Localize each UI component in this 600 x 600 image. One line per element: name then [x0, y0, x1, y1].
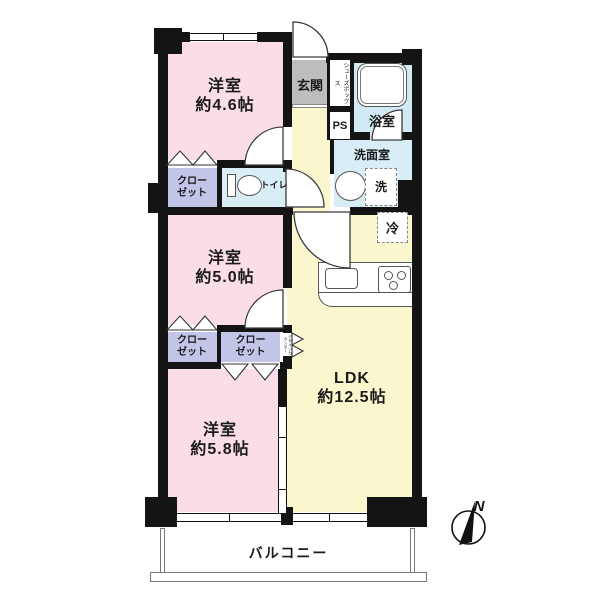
- closet-text: クロー: [177, 176, 207, 188]
- bedroom-bottom-label: 洋室 約5.8帖: [162, 422, 278, 460]
- entrance-label: 玄関: [290, 78, 330, 93]
- room-size: 約4.6帖: [167, 97, 283, 116]
- closet-text: ゼット: [177, 347, 207, 359]
- shoe-box-label: シューズボックス: [331, 61, 349, 105]
- bedroom-mid-door-swing: [245, 290, 283, 328]
- closet-text: ゼット: [177, 188, 207, 200]
- pipe-space-label: PS: [333, 120, 348, 132]
- entrance-door-swing: [293, 22, 328, 57]
- room-size: 約5.8帖: [162, 441, 278, 460]
- closet3-fold-door: [222, 364, 278, 380]
- bedroom-mid-label: 洋室 約5.0帖: [167, 250, 283, 288]
- closet1-label: クロー ゼット: [167, 168, 217, 207]
- hallway-door-swing: [294, 212, 350, 268]
- compass: N: [452, 498, 486, 545]
- ldk-label: LDK 約12.5帖: [292, 370, 412, 408]
- washroom-text: 洗面室: [354, 148, 390, 162]
- design-counter-text: デザインカウンター: [283, 333, 292, 356]
- room-name: 洋室: [167, 250, 283, 269]
- room-name: LDK: [292, 370, 412, 389]
- closet-text: クロー: [236, 335, 266, 347]
- bathroom-text: 浴室: [369, 114, 395, 129]
- room-size: 約5.0帖: [167, 269, 283, 288]
- pipe-space-box: PS: [330, 112, 350, 139]
- toilet-text: トイレ: [260, 180, 287, 190]
- closet2-label: クロー ゼット: [167, 332, 217, 362]
- closet-text: クロー: [177, 335, 207, 347]
- closet2-fold-door: [167, 316, 217, 330]
- bedroom-top-door-swing: [245, 127, 283, 165]
- compass-north-label: N: [474, 498, 486, 515]
- washer-label: 洗: [365, 180, 397, 194]
- washer-text: 洗: [375, 180, 387, 194]
- toilet-door-swing: [286, 169, 324, 207]
- washroom-label: 洗面室: [334, 148, 410, 162]
- balcony-text: バルコニー: [249, 545, 329, 561]
- entrance-text: 玄関: [297, 78, 323, 93]
- refrigerator-label: 冷: [377, 221, 408, 236]
- room-name: 洋室: [162, 422, 278, 441]
- room-name: 洋室: [167, 78, 283, 97]
- toilet-label: トイレ: [260, 180, 288, 191]
- bedroom-top-label: 洋室 約4.6帖: [167, 78, 283, 116]
- closet-text: ゼット: [236, 347, 266, 359]
- room-size: 約12.5帖: [292, 389, 412, 408]
- balcony-label: バルコニー: [150, 545, 427, 562]
- refrigerator-text: 冷: [386, 221, 399, 236]
- closet1-fold-door: [167, 151, 217, 165]
- closet3-label: クロー ゼット: [221, 332, 280, 362]
- floor-plan: シューズボックス PS: [0, 0, 600, 600]
- bathroom-label: 浴室: [352, 114, 412, 129]
- design-counter-label: デザインカウンター: [283, 333, 292, 356]
- design-counter-fold-door: [292, 333, 303, 357]
- shoe-box: シューズボックス: [330, 60, 350, 106]
